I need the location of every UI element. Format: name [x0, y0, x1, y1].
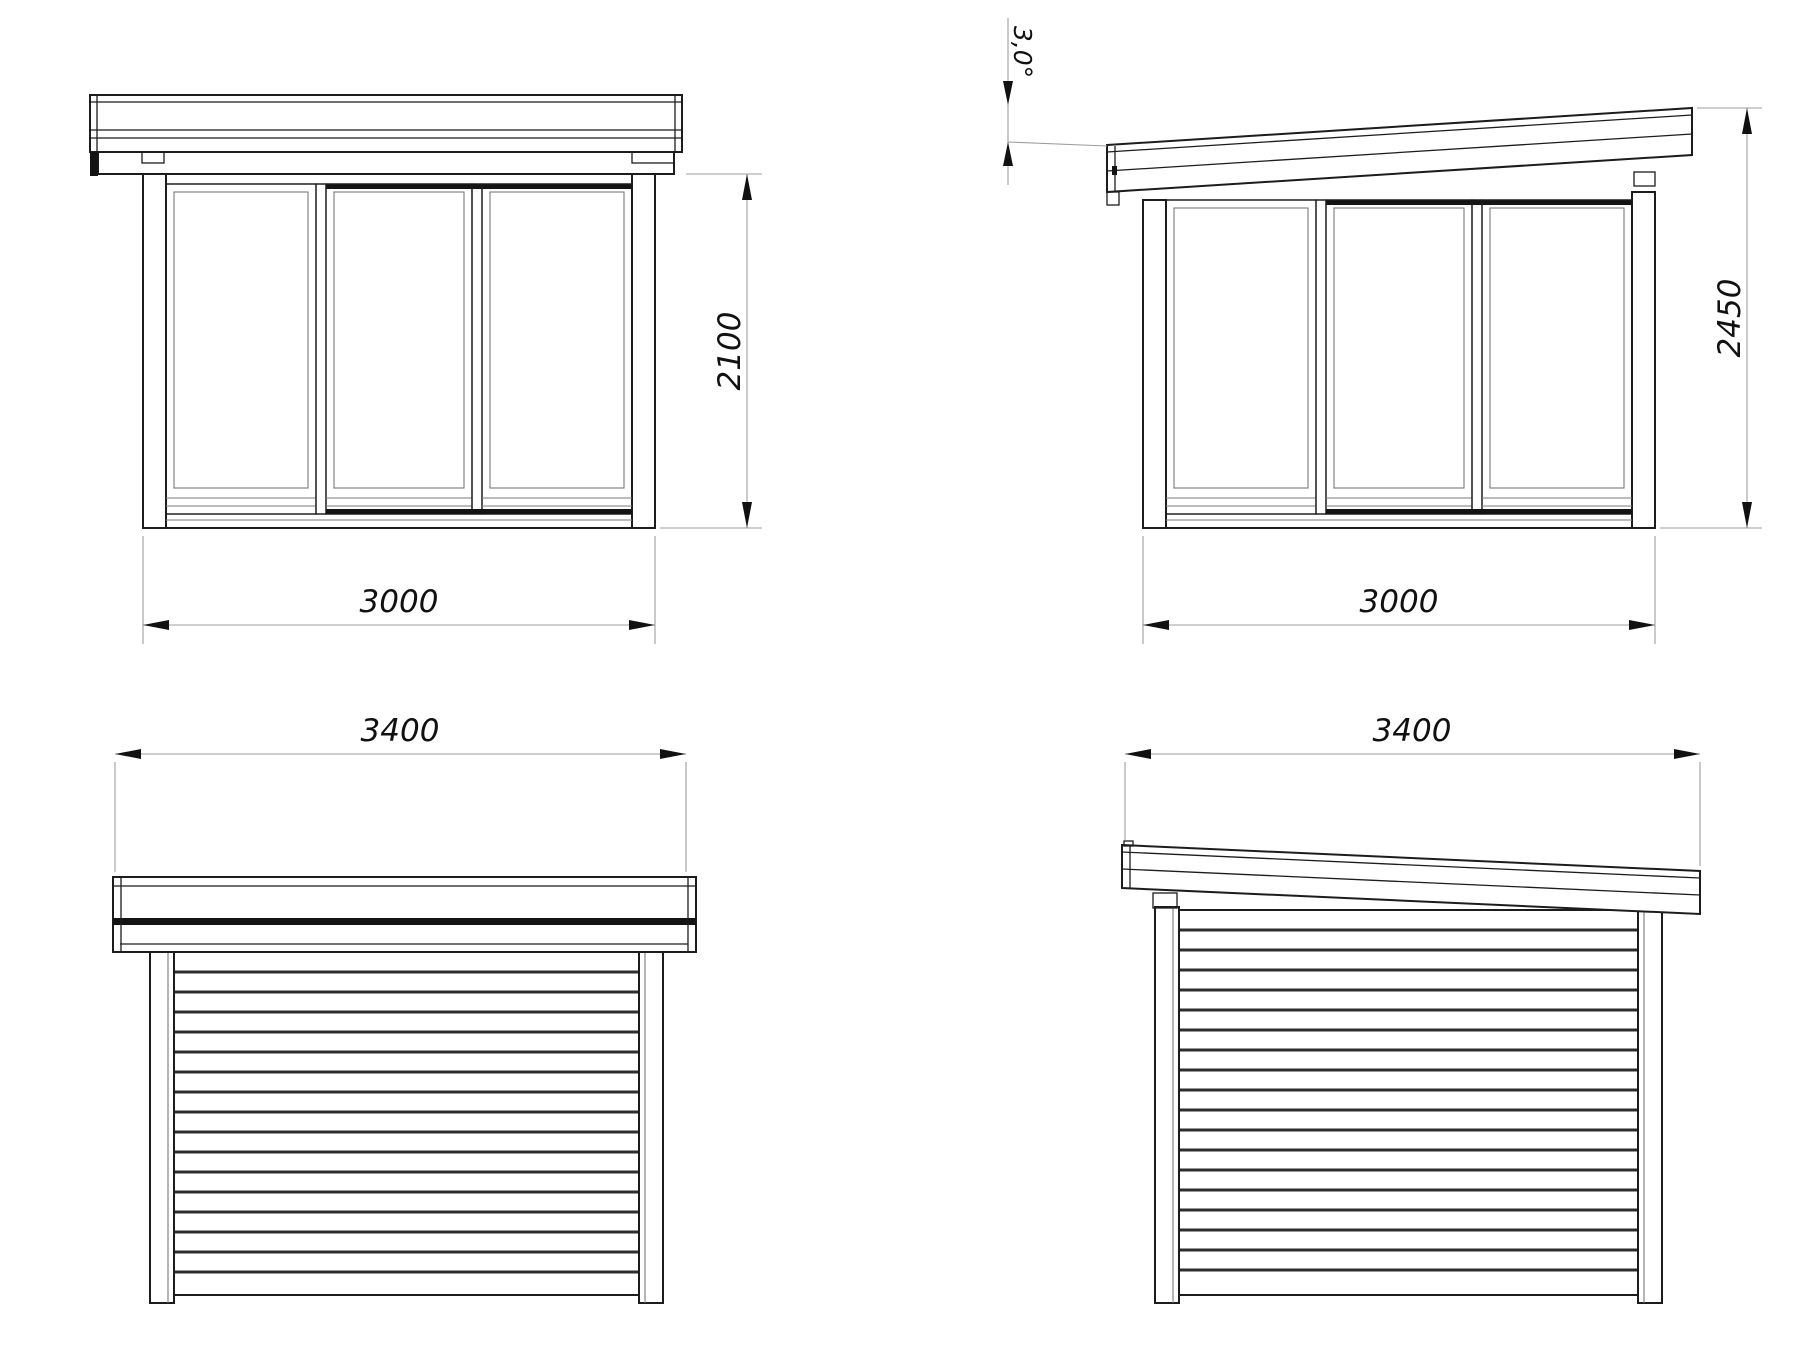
technical-drawing: 2100 3000 — [0, 0, 1800, 1350]
dimension-value: 2100 — [712, 312, 748, 391]
dimension-arrow — [1629, 620, 1655, 630]
glass-pane — [1490, 208, 1624, 488]
post-notch — [1634, 172, 1655, 186]
roof-band — [90, 95, 682, 152]
mullion — [1472, 200, 1482, 514]
mullion — [1316, 200, 1326, 514]
roof-angle-value: 3,0° — [1008, 26, 1037, 78]
eave-end-cap — [90, 152, 98, 176]
corner-post-right — [639, 952, 663, 1303]
sliding-track-bottom — [326, 509, 632, 514]
wall-outline — [143, 174, 655, 528]
sliding-track-bottom — [1326, 509, 1632, 514]
dimension-value: 2450 — [1712, 279, 1748, 358]
dimension-value: 3400 — [1373, 713, 1452, 749]
view-front-flat-roof: 2100 3000 — [90, 95, 762, 644]
dimension-height-2450: 2450 — [1660, 108, 1762, 528]
siding-area — [174, 952, 639, 1295]
glass-pane — [1334, 208, 1464, 488]
view-side-pent-roof: 3400 — [1122, 713, 1700, 1303]
eave-beam — [98, 152, 674, 174]
glass-wall-front — [1143, 172, 1655, 528]
glass-panel — [1166, 200, 1316, 514]
dimension-arrow — [1003, 81, 1013, 105]
glass-wall-front — [143, 174, 655, 528]
dimension-arrow — [1125, 749, 1151, 759]
view-side-flat-roof: 3400 — [113, 713, 696, 1303]
corner-post-right — [1638, 911, 1662, 1303]
flat-roof-fascia — [90, 95, 682, 176]
dimension-arrow — [660, 749, 686, 759]
dimension-depth-3400: 3400 — [1125, 713, 1700, 866]
dimension-arrow — [115, 749, 141, 759]
dimension-depth-3400: 3400 — [115, 713, 686, 872]
dimension-arrow — [742, 502, 752, 528]
sliding-track-top — [326, 184, 632, 189]
post-notch — [1153, 893, 1177, 908]
corner-post-left — [143, 174, 166, 528]
corner-post-right — [632, 174, 655, 528]
clad-wall-side — [1153, 893, 1662, 1303]
dimension-arrow — [1003, 142, 1013, 166]
sliding-track-top — [1326, 200, 1632, 205]
pent-roof-fascia — [1107, 108, 1692, 205]
dimension-arrow — [629, 620, 655, 630]
dimension-arrow — [1143, 620, 1169, 630]
pent-roof-fascia-side — [1122, 841, 1700, 914]
dimension-value: 3400 — [361, 713, 440, 749]
dimension-arrow — [1674, 749, 1700, 759]
dimension-value: 3000 — [1360, 584, 1439, 620]
corner-post-left — [1155, 907, 1179, 1303]
dimension-width-3000: 3000 — [1143, 536, 1655, 644]
corner-post-left — [150, 952, 174, 1303]
dimension-value: 3000 — [360, 584, 439, 620]
clad-wall-side — [150, 952, 663, 1303]
glass-panel — [1482, 200, 1632, 514]
dimension-arrow — [1742, 108, 1752, 134]
glass-panel — [1326, 200, 1472, 514]
roof-band — [113, 877, 696, 952]
dimension-arrow — [742, 174, 752, 200]
dimension-arrow — [143, 620, 169, 630]
siding-area — [1178, 910, 1638, 1295]
roof-angle-annotation: 3,0° — [1003, 18, 1107, 185]
corner-post-left — [1143, 200, 1166, 528]
glass-pane — [1174, 208, 1308, 488]
drawing-canvas: 2100 3000 — [0, 0, 1800, 1350]
view-front-pent-roof: 3,0° 2450 3000 — [1003, 18, 1762, 644]
dimension-height-2100: 2100 — [660, 174, 762, 528]
dimension-width-3000: 3000 — [143, 536, 655, 644]
corner-post-right — [1632, 192, 1655, 528]
angle-reference-line — [1008, 142, 1107, 146]
dimension-arrow — [1742, 502, 1752, 528]
flat-roof-fascia-side — [113, 877, 696, 952]
roof-shadow-line — [113, 918, 696, 925]
